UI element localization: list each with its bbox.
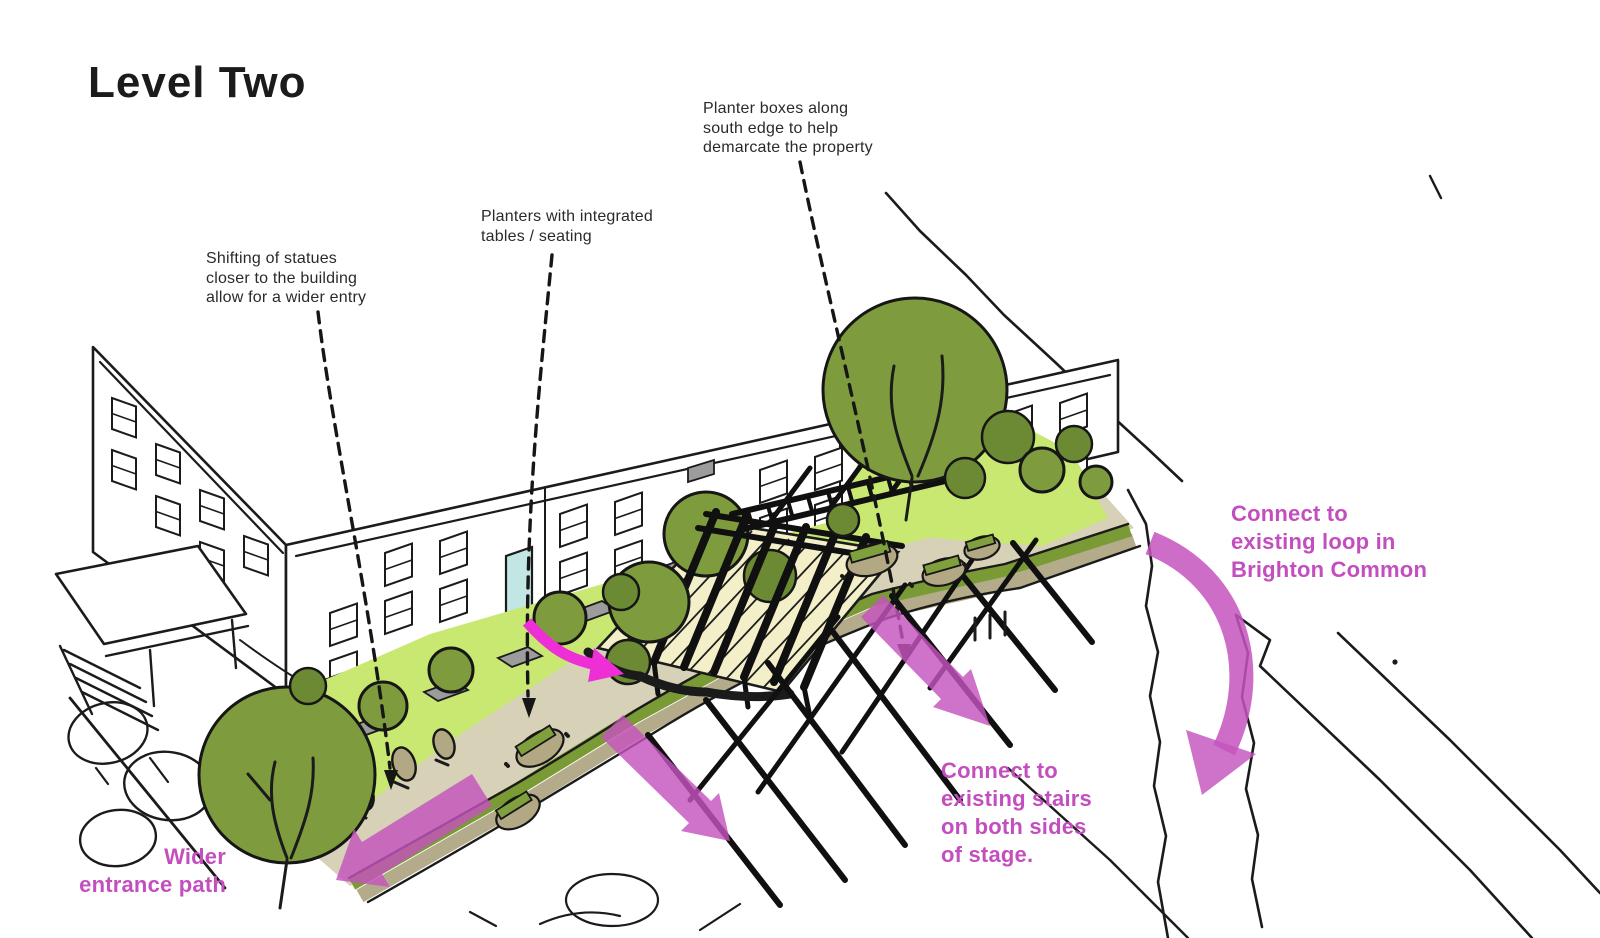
foreground-sketch-marks (470, 874, 740, 930)
callout-wider-entrance: Wider entrance path (0, 843, 226, 899)
stage-right-arrow (861, 595, 990, 726)
note-statues: Shifting of statues closer to the buildi… (206, 249, 366, 308)
callout-connect-stairs: Connect to existing stairs on both sides… (941, 757, 1092, 869)
level-two-diagram-page: Level Two Planter boxes along south edge… (0, 0, 1600, 938)
note-planters: Planters with integrated tables / seatin… (481, 207, 653, 246)
page-title: Level Two (88, 58, 306, 108)
callout-connect-loop: Connect to existing loop in Brighton Com… (1231, 500, 1427, 584)
note-planter-boxes: Planter boxes along south edge to help d… (703, 99, 873, 158)
